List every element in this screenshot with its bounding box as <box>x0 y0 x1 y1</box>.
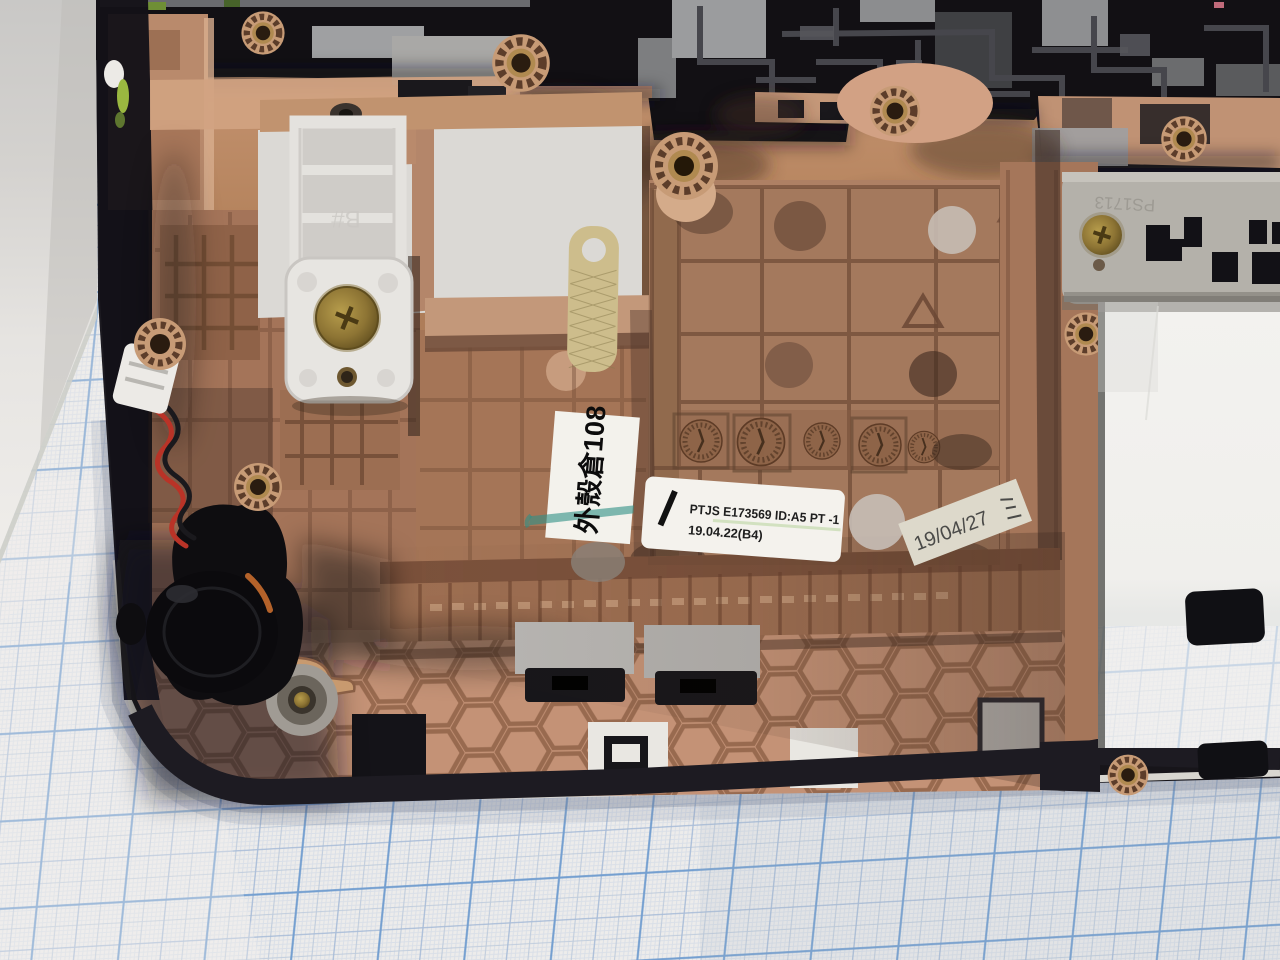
svg-text:PS1713: PS1713 <box>1094 193 1155 215</box>
svg-text:B#: B# <box>331 205 361 232</box>
